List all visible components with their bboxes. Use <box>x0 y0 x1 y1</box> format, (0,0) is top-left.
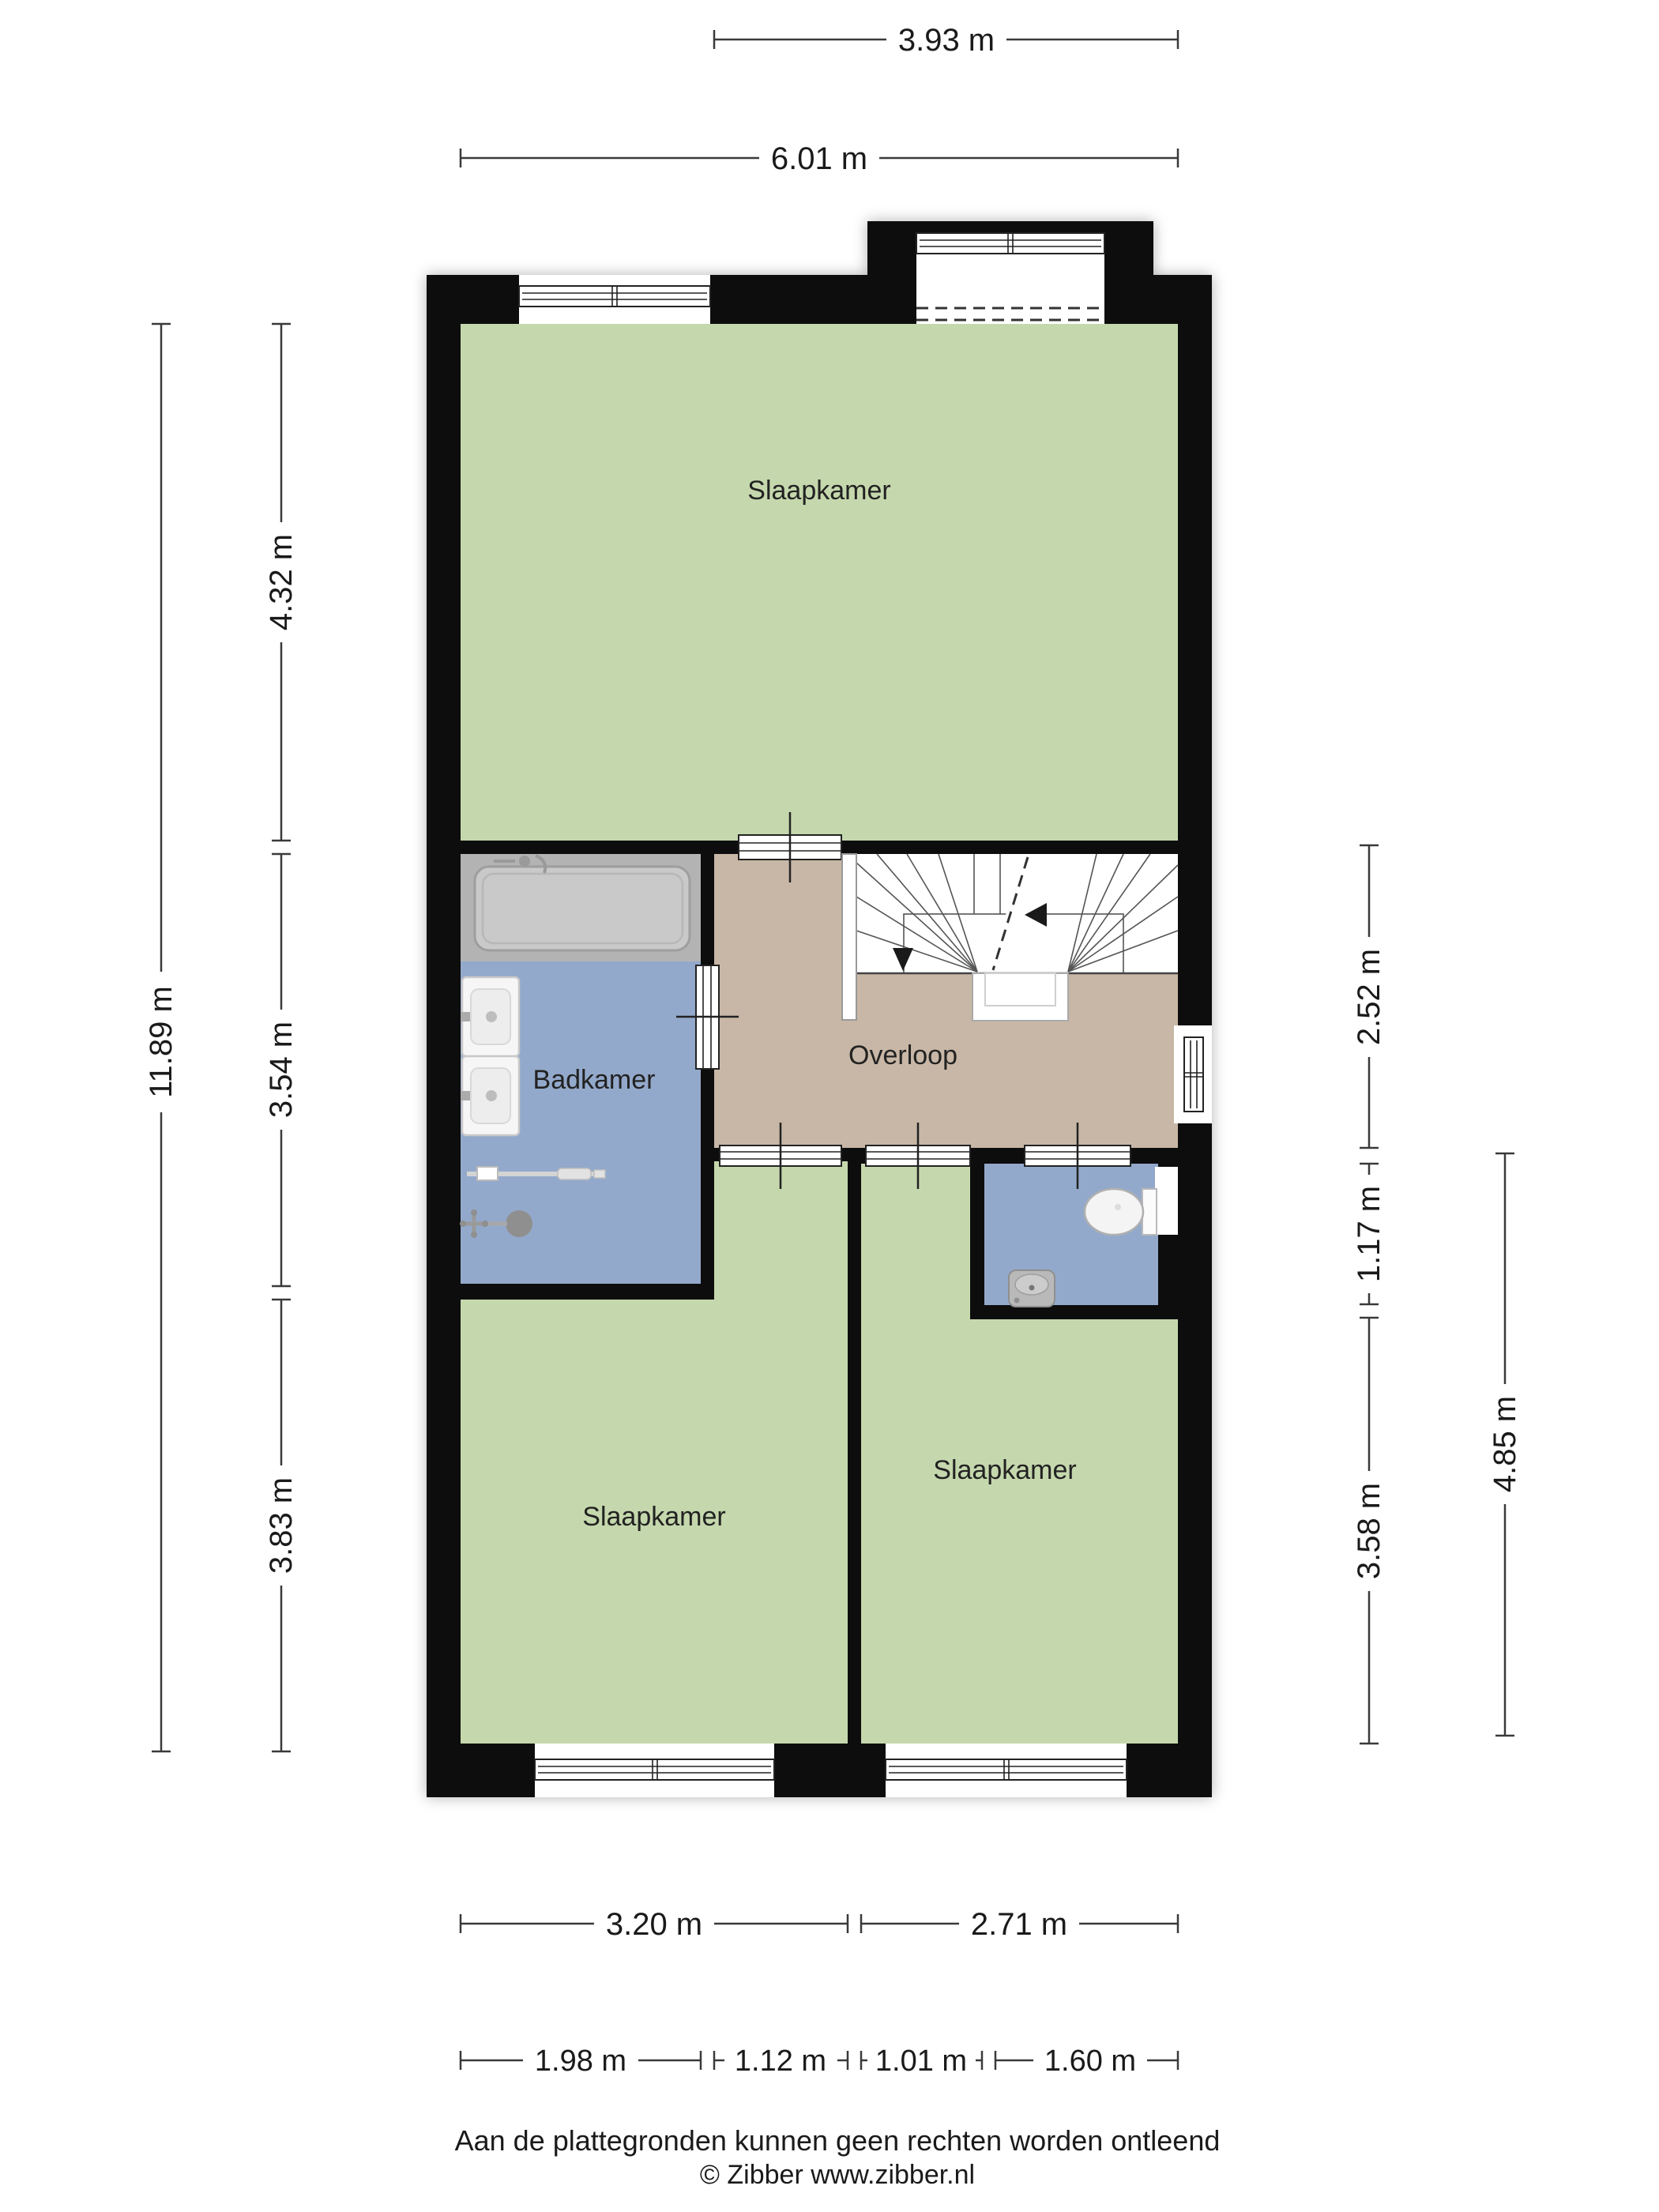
dim-bottom-left-room: 3.20 m <box>461 1907 848 1942</box>
dim-text: 1.17 m <box>1352 1186 1386 1282</box>
dim-text: 1.60 m <box>1044 2045 1136 2078</box>
window-bottom-left <box>535 1744 774 1797</box>
window-dormer <box>916 233 1104 324</box>
dim-left-seg-top: 4.32 m <box>264 324 299 841</box>
label-landing: Overloop <box>848 1040 957 1070</box>
dim-text: 2.52 m <box>1352 949 1386 1045</box>
dim-left-seg-bottom: 3.83 m <box>264 1300 299 1751</box>
dim-right-outer: 4.85 m <box>1488 1153 1522 1736</box>
double-sink-icon <box>461 977 519 1135</box>
dim-text: 4.32 m <box>264 534 299 630</box>
dim-text: 1.01 m <box>875 2045 967 2078</box>
dim-bottom-toilet: 1.60 m <box>995 2045 1178 2078</box>
dim-top-landing: 3.93 m <box>714 23 1178 58</box>
hand-basin-icon <box>1009 1270 1055 1307</box>
dim-text: 3.58 m <box>1352 1483 1386 1579</box>
label-bedroom-right: Slaapkamer <box>933 1455 1076 1485</box>
dim-text: 1.98 m <box>535 2045 626 2078</box>
dim-bottom-right-room: 2.71 m <box>861 1907 1178 1942</box>
dim-left-total: 11.89 m <box>144 324 179 1751</box>
dim-text: 2.71 m <box>971 1907 1067 1942</box>
window-right <box>1174 1025 1212 1123</box>
dim-bottom-bathroom: 1.98 m <box>461 2045 701 2078</box>
dim-right-bedroom: 3.58 m <box>1352 1318 1386 1744</box>
label-bedroom-left: Slaapkamer <box>582 1502 725 1532</box>
floorplan-canvas: Slaapkamer Badkamer Overloop Slaapkamer … <box>0 0 1659 2212</box>
dim-text: 11.89 m <box>144 986 179 1098</box>
dim-text: 3.54 m <box>264 1021 299 1118</box>
dim-right-landing: 2.52 m <box>1352 845 1386 1148</box>
label-bedroom-top: Slaapkamer <box>747 476 890 506</box>
dim-text: 6.01 m <box>771 141 867 176</box>
window-bottom-right <box>886 1744 1127 1797</box>
dim-text: 3.83 m <box>264 1477 299 1574</box>
room-bedroom-top <box>461 324 1178 841</box>
dim-text: 1.12 m <box>735 2045 826 2078</box>
dim-text: 4.85 m <box>1488 1396 1522 1492</box>
dim-left-seg-mid: 3.54 m <box>264 854 299 1286</box>
dim-top-total: 6.01 m <box>461 141 1178 176</box>
footer-copyright: © Zibber www.zibber.nl <box>700 2160 975 2190</box>
toilet-niche <box>1155 1167 1178 1235</box>
dim-bottom-passage: 1.12 m <box>714 2045 848 2078</box>
bathtub-icon <box>475 856 690 950</box>
floorplan-page: Slaapkamer Badkamer Overloop Slaapkamer … <box>0 0 1659 2212</box>
toilet-icon <box>1085 1189 1157 1235</box>
room-floors <box>461 324 1178 1744</box>
stair-railing <box>842 854 856 1020</box>
footer-disclaimer: Aan de plattegronden kunnen geen rechten… <box>455 2124 1221 2157</box>
stair-landing <box>972 973 1068 1021</box>
dim-right-toilet: 1.17 m <box>1352 1164 1386 1304</box>
label-bathroom: Badkamer <box>533 1065 656 1095</box>
dim-text: 3.20 m <box>606 1907 702 1942</box>
dim-bottom-doorway: 1.01 m <box>861 2045 982 2078</box>
dim-text: 3.93 m <box>898 23 995 58</box>
window-top-left <box>519 275 710 324</box>
